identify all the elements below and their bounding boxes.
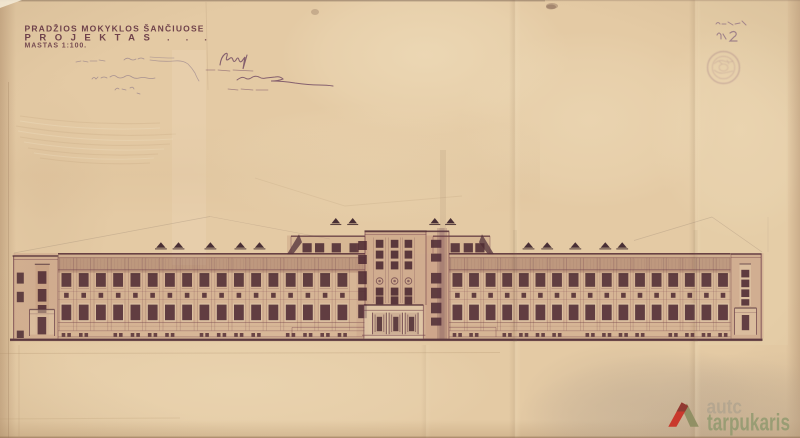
svg-text:MASTAS 1:100.: MASTAS 1:100. — [25, 43, 88, 50]
svg-text:tarpukaris: tarpukaris — [707, 410, 790, 437]
svg-text:...: ... — [167, 33, 223, 44]
